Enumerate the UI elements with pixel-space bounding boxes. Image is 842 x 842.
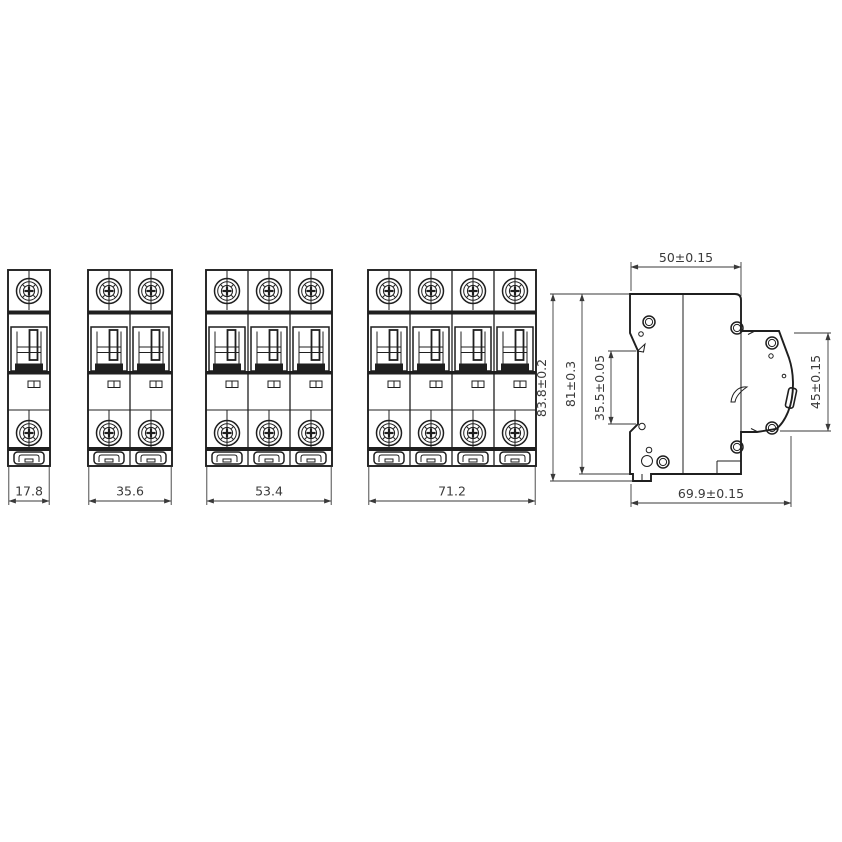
front-view-2pole: 35.6 — [88, 270, 172, 505]
breaker-pole — [11, 271, 47, 464]
front-view-1pole: 17.8 — [8, 270, 50, 505]
dimension-label: 71.2 — [438, 484, 466, 499]
breaker-pole — [133, 271, 169, 464]
dimension-label: 17.8 — [15, 484, 43, 499]
din-clip-pin — [639, 423, 645, 429]
dimension-label: 83.8±0.2 — [534, 359, 549, 417]
dimension-label: 35.5±0.05 — [592, 355, 607, 421]
lever-slot — [731, 387, 747, 402]
dimension-width: 17.8 — [9, 467, 49, 505]
dimension-label: 69.9±0.15 — [678, 486, 744, 501]
breaker-pole — [209, 271, 245, 464]
dimension-label: 35.6 — [116, 484, 144, 499]
dimension-width: 71.2 — [369, 467, 535, 505]
din-rail-hook — [638, 344, 646, 352]
breaker-pole — [251, 271, 287, 464]
dimension-top-width: 50±0.15 — [631, 250, 741, 296]
breaker-pole — [91, 271, 127, 464]
dimension-overall-depth: 69.9±0.15 — [631, 436, 791, 507]
breaker-pole — [293, 271, 329, 464]
dimension-front-face: 45±0.15 — [780, 333, 831, 431]
dimension-label: 81±0.3 — [563, 361, 578, 407]
dimension-label: 45±0.15 — [808, 355, 823, 409]
side-view-group: 50±0.15 83.8±0.2 81±0.3 35.5±0.05 45±0.1… — [534, 250, 831, 507]
dimension-din-recess: 35.5±0.05 — [592, 351, 636, 424]
dimension-label: 50±0.15 — [659, 250, 713, 265]
front-view-4pole: 71.2 — [368, 270, 536, 505]
dimension-width: 53.4 — [207, 467, 331, 505]
dimension-width: 35.6 — [89, 467, 171, 505]
dimension-overall-height: 83.8±0.2 — [534, 294, 632, 481]
breaker-pole — [455, 271, 491, 464]
technical-drawing: 17.835.653.471.2 — [0, 0, 842, 842]
dimension-label: 53.4 — [255, 484, 283, 499]
breaker-pole — [497, 271, 533, 464]
breaker-pole — [371, 271, 407, 464]
front-view-3pole: 53.4 — [206, 270, 332, 505]
breaker-pole — [413, 271, 449, 464]
front-views-group: 17.835.653.471.2 — [8, 270, 536, 505]
